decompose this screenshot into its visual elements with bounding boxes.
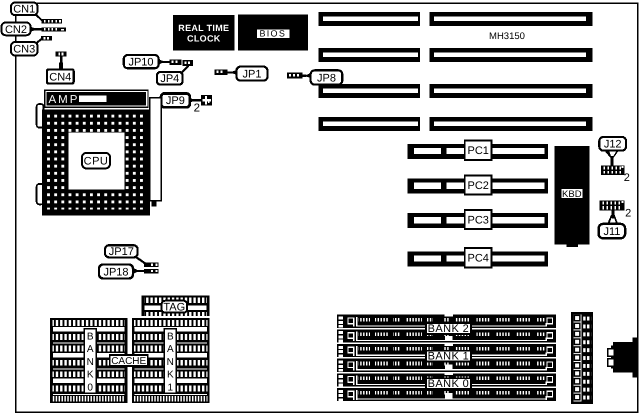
svg-text:JP9: JP9 [166, 95, 185, 107]
svg-text:K: K [87, 370, 94, 381]
svg-text:CACHE: CACHE [111, 356, 146, 367]
svg-text:JP17: JP17 [109, 246, 134, 258]
svg-text:CN2: CN2 [5, 24, 27, 36]
svg-text:1: 1 [168, 382, 174, 393]
svg-text:AMP: AMP [49, 94, 80, 106]
svg-text:JP4: JP4 [160, 73, 179, 85]
svg-text:JP1: JP1 [243, 69, 262, 81]
svg-text:BANK 0: BANK 0 [428, 378, 470, 390]
svg-text:PC4: PC4 [467, 253, 488, 265]
svg-text:J11: J11 [603, 226, 620, 238]
svg-text:B: B [87, 332, 94, 343]
svg-text:KBD: KBD [562, 189, 582, 200]
svg-text:A: A [167, 344, 174, 355]
svg-text:TAG: TAG [163, 302, 185, 314]
svg-text:J12: J12 [604, 139, 622, 151]
svg-text:BIOS: BIOS [259, 29, 286, 39]
svg-text:N: N [167, 357, 174, 368]
svg-text:CLOCK: CLOCK [187, 34, 221, 44]
svg-text:B: B [167, 332, 174, 343]
svg-text:2: 2 [625, 207, 631, 219]
svg-text:REAL TIME: REAL TIME [178, 23, 229, 33]
svg-text:A: A [87, 344, 94, 355]
svg-text:2: 2 [194, 102, 200, 114]
svg-text:CN3: CN3 [13, 44, 35, 56]
svg-text:CPU: CPU [84, 156, 109, 168]
svg-text:PC3: PC3 [467, 214, 488, 226]
svg-text:CN4: CN4 [49, 71, 71, 83]
svg-text:BANK 2: BANK 2 [428, 323, 470, 335]
svg-text:PC1: PC1 [467, 145, 488, 157]
svg-text:JP8: JP8 [317, 72, 336, 84]
svg-text:PC2: PC2 [467, 180, 488, 192]
svg-text:2: 2 [624, 172, 630, 184]
svg-text:JP18: JP18 [103, 266, 128, 278]
svg-text:MH3150: MH3150 [489, 31, 525, 42]
svg-text:0: 0 [87, 382, 93, 393]
svg-text:CN1: CN1 [13, 4, 35, 16]
svg-text:K: K [167, 370, 174, 381]
svg-text:BANK 1: BANK 1 [428, 351, 470, 363]
svg-text:N: N [87, 357, 94, 368]
svg-text:JP10: JP10 [128, 57, 153, 69]
